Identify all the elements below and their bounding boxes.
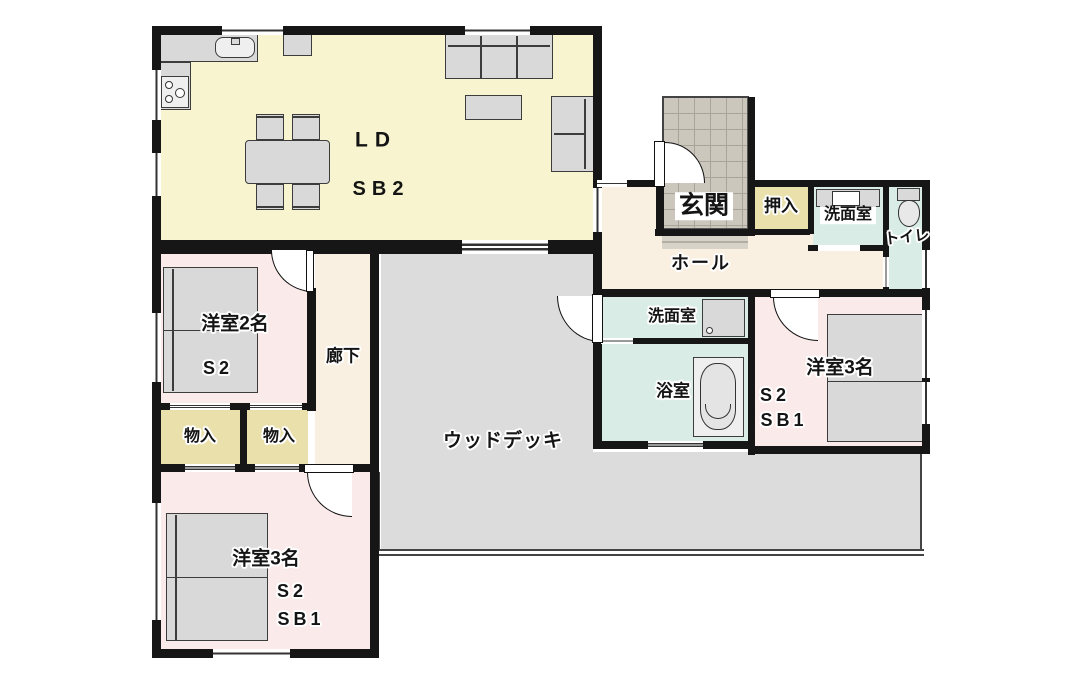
room-label-yoshitsu3-bottom-sb1: SB1 — [277, 610, 324, 630]
wood-deck-floor — [593, 452, 922, 551]
wall — [748, 446, 930, 454]
wall — [808, 182, 814, 234]
room-label-senmenshitsu-mid: 洗面室 — [648, 308, 696, 326]
sliding-door — [250, 403, 302, 410]
room-label-yoshitsu3-right-s2: S2 — [760, 386, 790, 406]
sofa-line — [480, 36, 482, 78]
bed-line — [175, 515, 177, 640]
stove-burner — [165, 81, 173, 89]
sliding-door — [255, 464, 299, 472]
room-label-yoshitsu2-s2: S2 — [203, 359, 233, 379]
wall — [748, 289, 755, 455]
washer-dot — [706, 327, 713, 334]
deck-edge — [378, 549, 924, 551]
bed-line — [172, 269, 174, 391]
door-leaf — [770, 289, 820, 298]
chair-back — [257, 116, 283, 118]
coffee-table — [465, 95, 522, 120]
window — [922, 250, 930, 288]
window — [152, 313, 161, 382]
kitchen-faucet — [231, 38, 240, 45]
porch-outline — [662, 96, 664, 143]
wood-deck-floor — [381, 249, 593, 551]
door-leaf — [306, 250, 314, 292]
dining-table — [245, 140, 330, 184]
room-label-yoshitsu3-right: 洋室3名 — [806, 359, 874, 380]
sofa-line — [516, 36, 518, 78]
vanity-basin — [832, 191, 860, 206]
wall — [240, 403, 247, 471]
room-label-ld: LD — [355, 128, 397, 151]
window — [152, 70, 161, 120]
room-label-yoshitsu3-bottom-s2: S2 — [277, 582, 307, 602]
chair-back — [293, 116, 319, 118]
toilet-bowl — [898, 200, 920, 227]
sliding-door — [648, 441, 703, 449]
wall — [655, 229, 755, 236]
window — [465, 26, 530, 35]
wall — [152, 26, 602, 35]
sliding-door — [185, 464, 235, 472]
room-label-rouka: 廊下 — [326, 348, 360, 367]
sliding-opening — [593, 188, 602, 232]
room-label-oshiire: 押入 — [764, 198, 798, 217]
sofa-line — [448, 45, 550, 47]
window — [152, 503, 161, 620]
stove-burner — [165, 95, 173, 103]
chair-back — [257, 206, 283, 208]
wall — [370, 240, 379, 658]
door-leaf — [304, 464, 354, 473]
room-label-monoire-right: 物入 — [263, 428, 295, 446]
room-label-hall: ホール — [671, 254, 731, 274]
floor-plan: LD SB2 玄関 押入 洗面室 トイレ ホール 洗面室 浴室 洋室3名 S2 … — [0, 0, 1091, 680]
room-label-wood-deck: ウッドデッキ — [443, 432, 563, 453]
armchair-line — [554, 133, 585, 135]
window — [922, 310, 930, 378]
door-leaf — [592, 294, 603, 343]
room-label-yoshitsu2: 洋室2名 — [201, 315, 269, 336]
cabinet — [283, 33, 312, 56]
porch-outline — [662, 96, 749, 98]
room-label-yoshitsu3-bottom: 洋室3名 — [232, 550, 300, 571]
wall — [307, 288, 316, 411]
window — [597, 180, 627, 187]
stove-burner — [175, 88, 185, 98]
window — [922, 382, 930, 424]
bathtub — [700, 363, 736, 430]
sliding-door — [170, 403, 230, 410]
wall — [656, 180, 664, 236]
door-opening — [601, 338, 633, 344]
room-label-bath: 浴室 — [656, 383, 690, 402]
room-label-genkan: 玄関 — [675, 192, 733, 220]
window — [213, 649, 290, 658]
bed — [166, 577, 268, 641]
wall — [593, 289, 930, 297]
room-label-yoshitsu3-right-sb1: SB1 — [760, 411, 807, 431]
wall — [749, 180, 930, 187]
wall — [748, 97, 755, 236]
deck-edge — [920, 452, 922, 550]
bed — [827, 381, 923, 442]
entry-door-leaf — [654, 141, 665, 187]
room-label-monoire-left: 物入 — [184, 428, 216, 446]
wall — [754, 229, 810, 235]
door-opening — [818, 245, 860, 251]
deck-edge — [378, 554, 924, 556]
chair-back — [293, 206, 319, 208]
window — [222, 26, 283, 35]
wall — [593, 26, 602, 447]
sofa — [445, 33, 553, 79]
door-opening — [883, 257, 889, 287]
window — [152, 153, 161, 196]
sliding-door — [462, 240, 548, 254]
room-label-ld-sub: SB2 — [353, 178, 410, 200]
room-label-senmenshitsu-top: 洗面室 — [820, 206, 876, 224]
genkan-step-line — [662, 241, 748, 243]
